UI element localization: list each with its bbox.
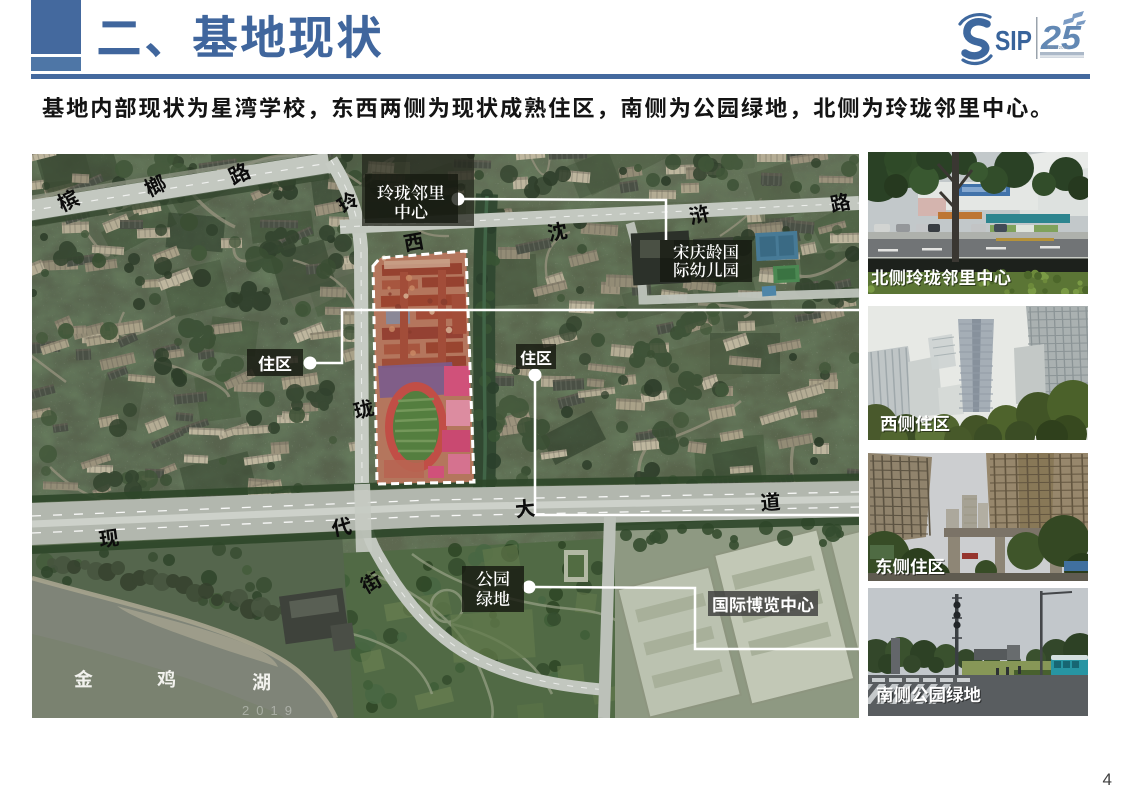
svg-text:1994-2019: 1994-2019 — [1047, 45, 1069, 50]
svg-text:2019: 2019 — [242, 703, 299, 718]
svg-text:25: 25 — [1040, 19, 1082, 56]
svg-text:4: 4 — [1103, 770, 1112, 789]
svg-text:SIP: SIP — [995, 25, 1032, 56]
